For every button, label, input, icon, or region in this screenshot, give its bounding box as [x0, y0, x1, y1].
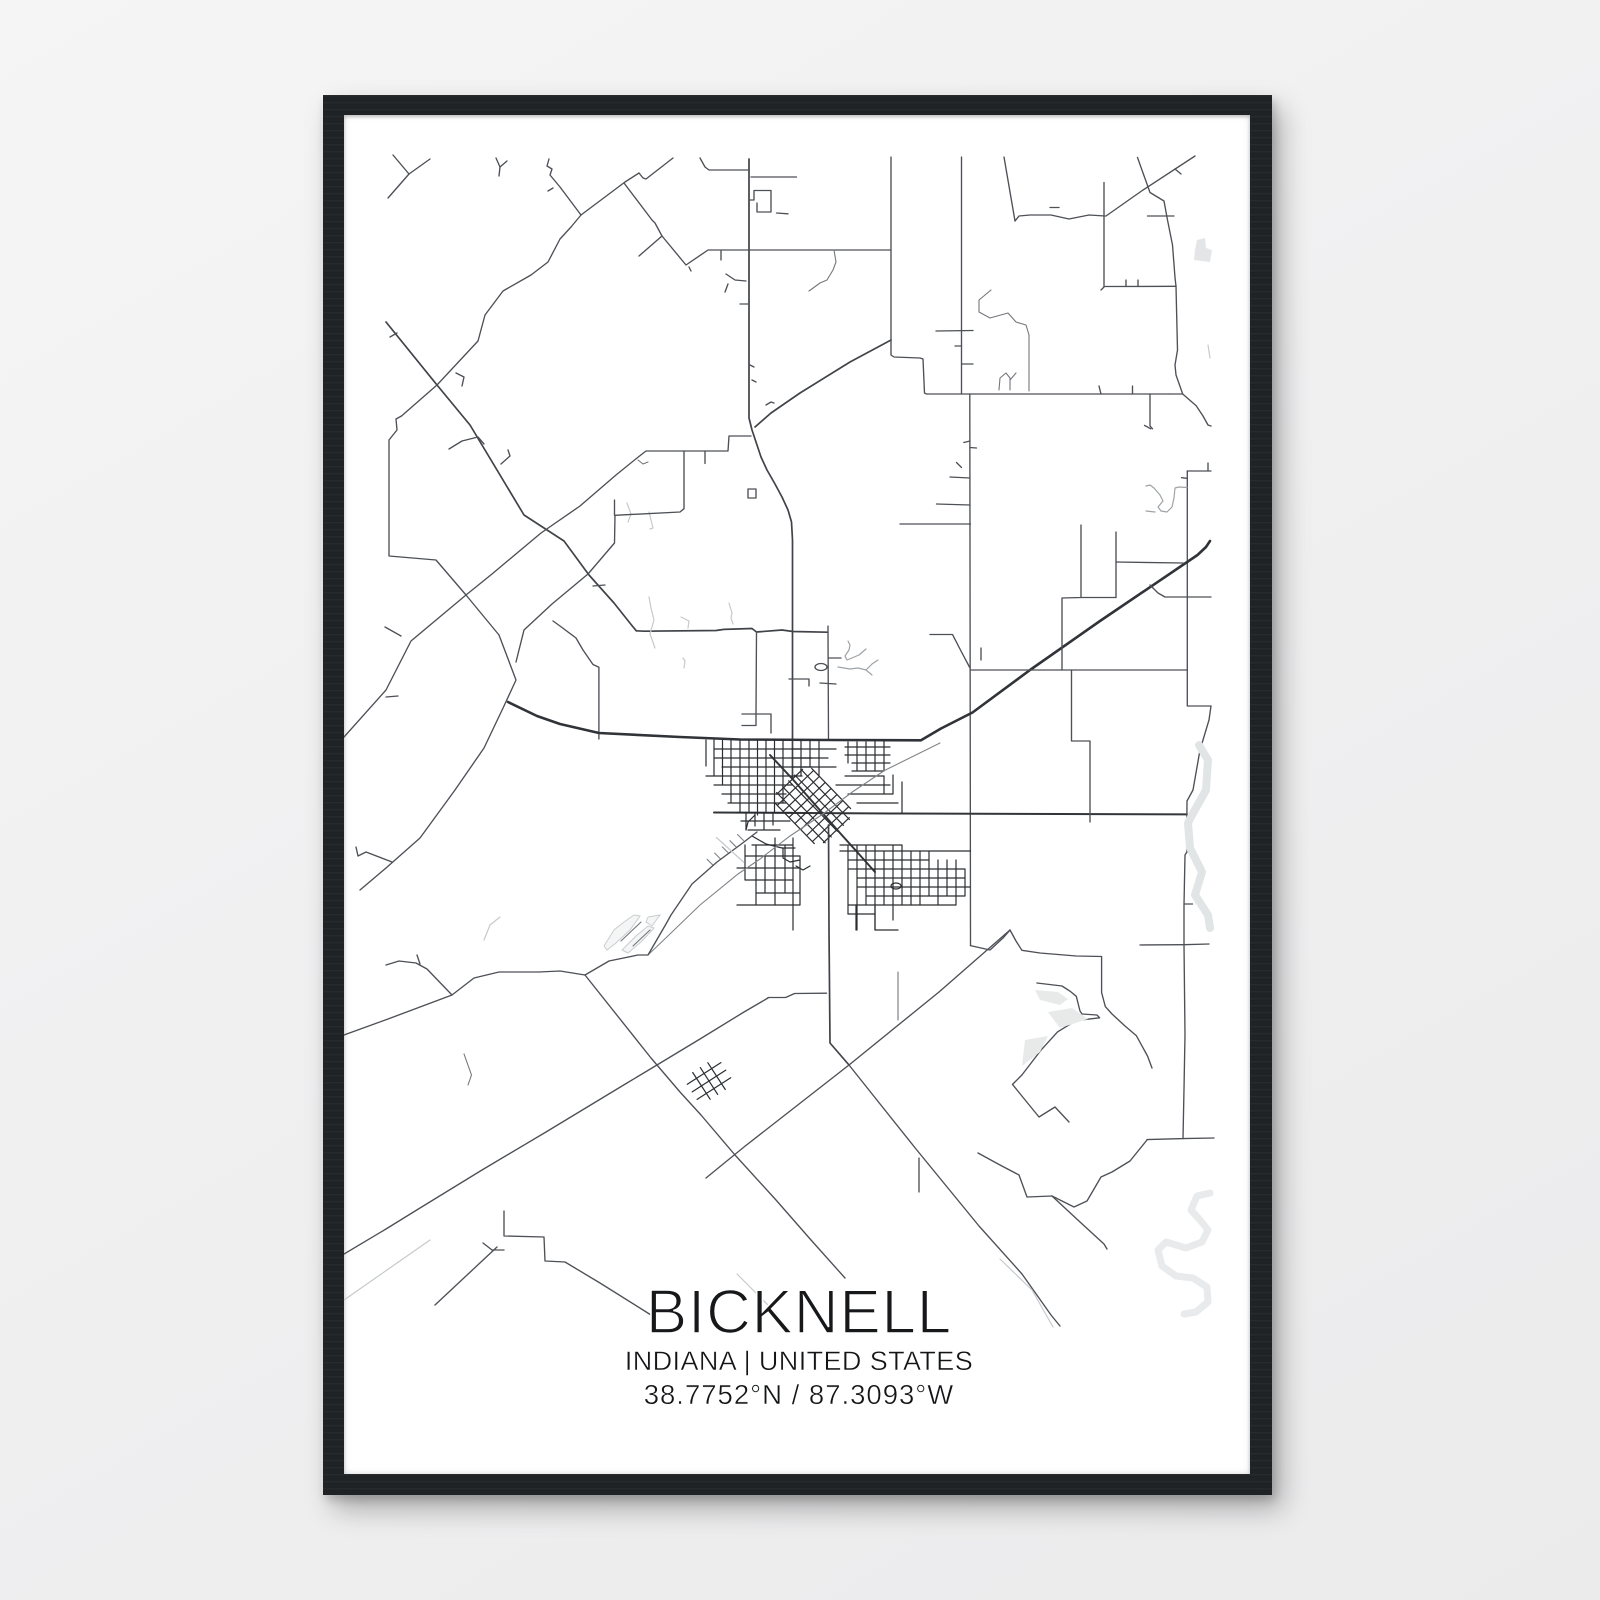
- svg-text:BICKNELL: BICKNELL: [646, 1278, 952, 1347]
- svg-text:INDIANA | UNITED STATES: INDIANA | UNITED STATES: [625, 1346, 973, 1376]
- svg-text:38.7752°N / 87.3093°W: 38.7752°N / 87.3093°W: [644, 1379, 955, 1410]
